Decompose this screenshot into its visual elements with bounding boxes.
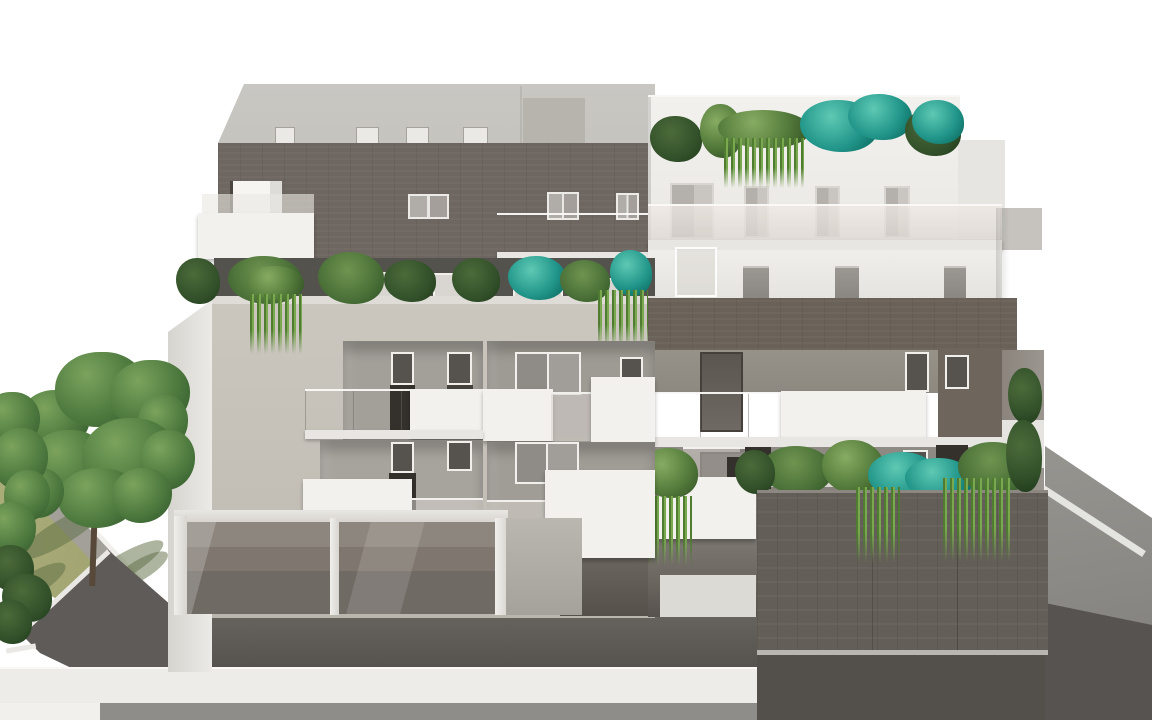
window: [391, 442, 414, 473]
window: [447, 441, 472, 471]
window: [675, 247, 717, 297]
lower-sidewalk-corner: [0, 703, 100, 720]
window-slot: [743, 266, 769, 298]
lower-light-panel: [660, 575, 756, 617]
hanging-vine: [724, 138, 804, 188]
corner-climbing-plant: [1008, 368, 1042, 424]
glass-balustrade: [497, 213, 655, 255]
glass-balustrade: [305, 389, 412, 433]
window: [905, 352, 929, 392]
window-slot: [944, 266, 966, 298]
dark-floor-band-right: [648, 298, 1017, 350]
window-slot: [835, 266, 859, 298]
roof-plant-monstera: [912, 100, 964, 144]
glass-balustrade: [551, 392, 595, 441]
sidewalk: [0, 667, 772, 703]
corner-climbing-plant: [1006, 420, 1042, 492]
hanging-vine: [856, 487, 900, 563]
tower-right-shade: [996, 208, 1010, 298]
ground-floor-glazing: [174, 518, 508, 614]
window: [447, 352, 472, 385]
planter-base-line: [757, 650, 1048, 655]
structural-column: [174, 516, 187, 615]
ground-side-wall: [506, 518, 582, 615]
white-balcony-panel: [591, 377, 655, 444]
attic-recessed-panel: [523, 98, 585, 143]
roof-plant: [650, 116, 702, 162]
window: [945, 355, 969, 389]
terrace-plant: [176, 258, 220, 304]
lower-road-strip: [100, 703, 772, 720]
hanging-vine: [598, 290, 648, 348]
white-balcony-box: [198, 213, 314, 259]
white-balcony-panel: [483, 389, 553, 441]
terrace-plant: [384, 260, 436, 302]
ground-beam: [174, 510, 508, 522]
window: [391, 352, 414, 385]
tree-canopy: [112, 468, 172, 523]
terrace-plant-monstera: [508, 256, 566, 300]
structural-column: [330, 518, 339, 615]
balcony-slab: [305, 430, 483, 439]
roof-plant-monstera: [848, 94, 912, 140]
architectural-render: gabetti FRANCHISING AGENCY LANCIANO (CH): [0, 0, 1152, 720]
hanging-vine: [250, 294, 302, 354]
window: [408, 194, 449, 219]
glass-balustrade: [652, 392, 783, 442]
planter-plant: [735, 450, 775, 494]
white-balcony-panel: [781, 391, 926, 442]
hanging-vine: [943, 478, 1013, 562]
terrace-plant: [452, 258, 500, 302]
terrace-plant: [318, 252, 384, 304]
roof-terrace-balustrade: [648, 204, 1002, 242]
curb-line: [6, 643, 36, 653]
